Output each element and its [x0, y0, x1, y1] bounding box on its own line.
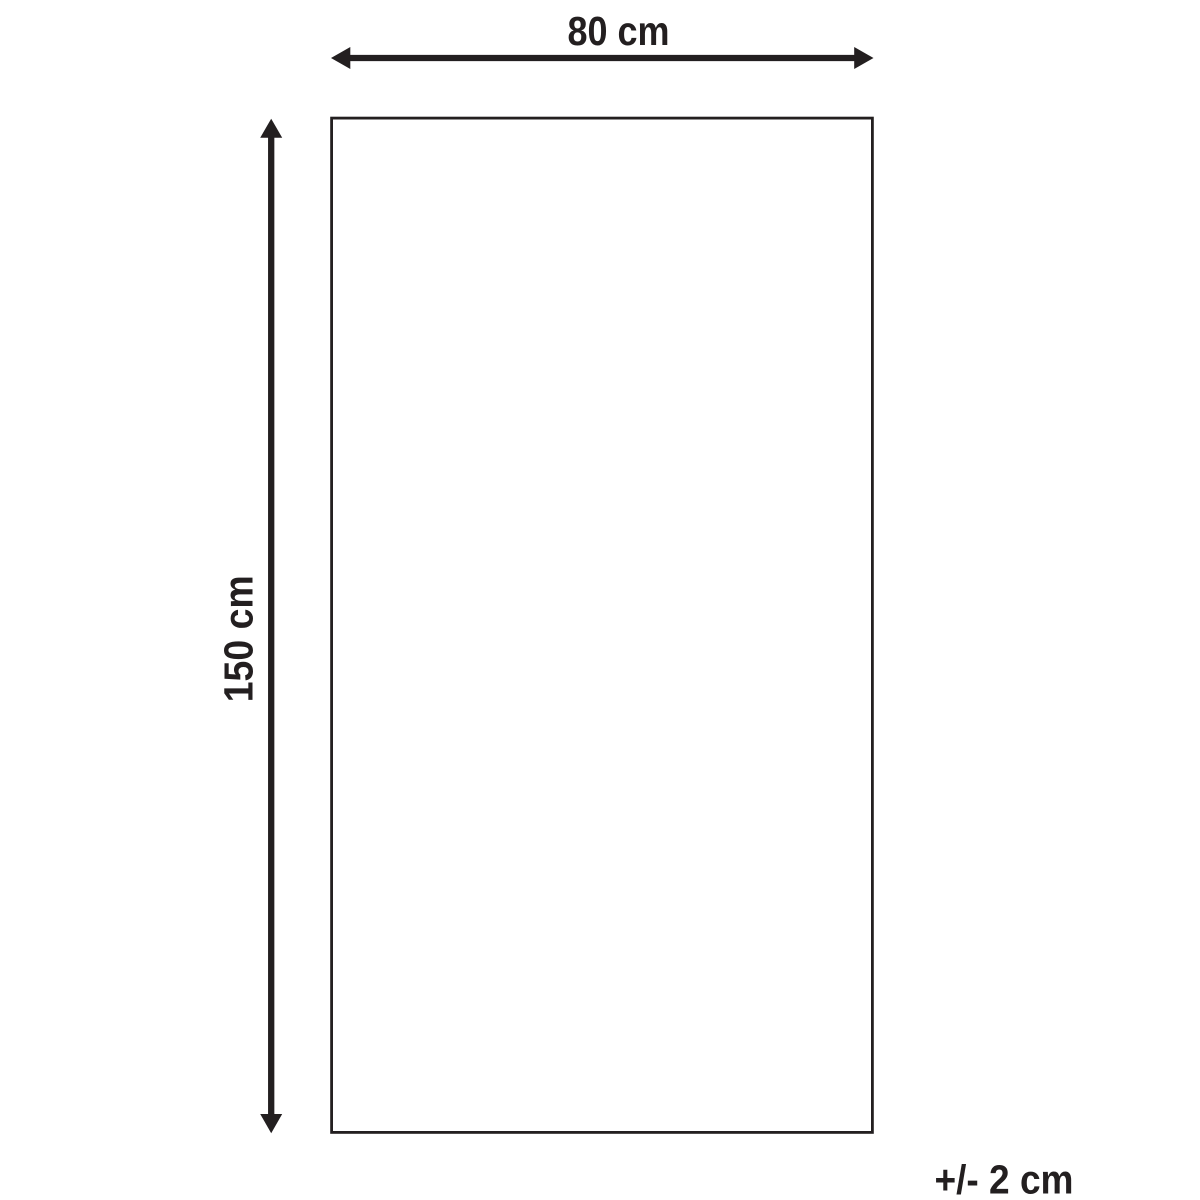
svg-text:80 cm: 80 cm	[568, 8, 670, 54]
svg-text:+/- 2 cm: +/- 2 cm	[935, 1157, 1074, 1200]
svg-text:150 cm: 150 cm	[216, 575, 262, 702]
